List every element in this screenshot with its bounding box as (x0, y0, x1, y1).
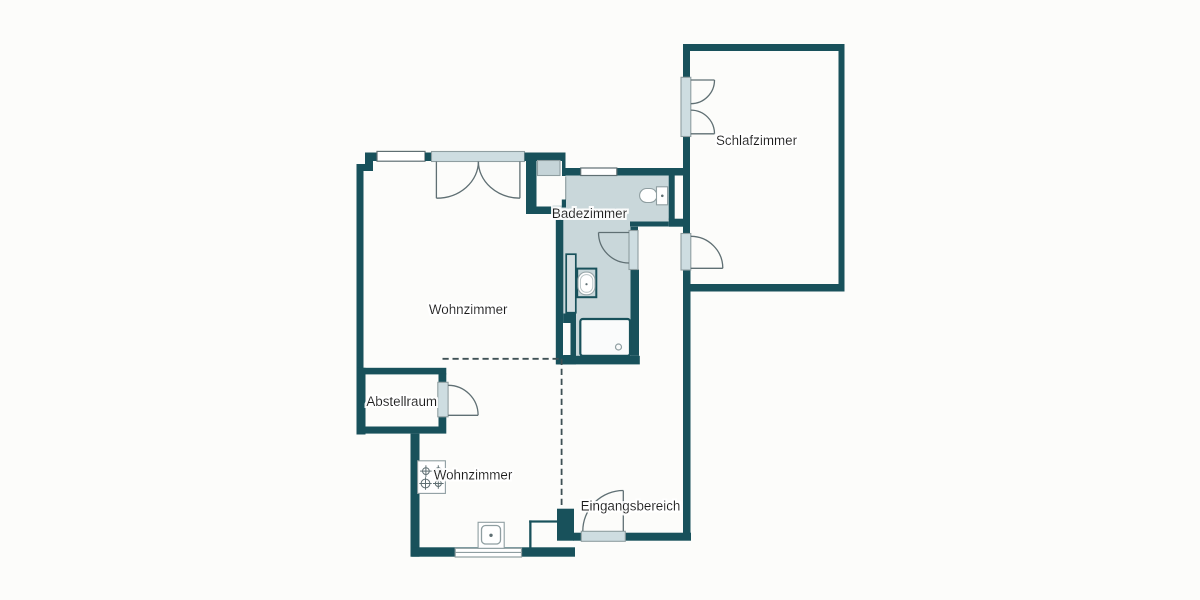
svg-text:Badezimmer: Badezimmer (552, 206, 628, 221)
svg-text:Wohnzimmer: Wohnzimmer (429, 302, 508, 317)
svg-text:Eingangsbereich: Eingangsbereich (581, 499, 681, 514)
svg-text:Schlafzimmer: Schlafzimmer (716, 133, 798, 148)
svg-text:Wohnzimmer: Wohnzimmer (434, 468, 513, 483)
svg-text:Abstellraum: Abstellraum (366, 394, 437, 409)
